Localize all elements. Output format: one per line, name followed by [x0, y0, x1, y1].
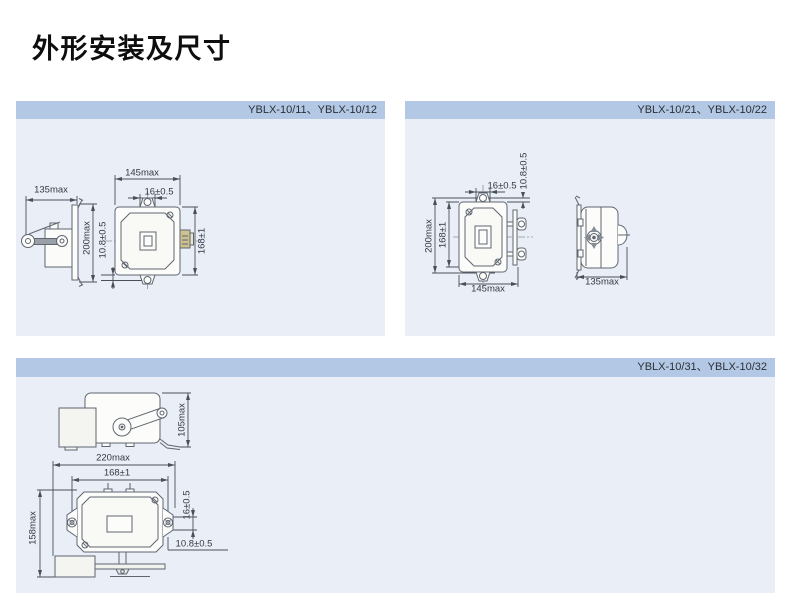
dim-lever-height: 105max [177, 403, 187, 437]
dim-height: 200max [82, 221, 92, 255]
datasheet-page: 外形安装及尺寸 YBLX-10/11、YBLX-10/12 [0, 0, 790, 614]
dim-hole-offset: 10.8±0.5 [519, 153, 529, 190]
dim-side-width: 135max [34, 185, 68, 195]
dim-slot: 16±0.5 [488, 181, 517, 191]
model-label: YBLX-10/31、YBLX-10/32 [637, 361, 767, 373]
dim-hole-spacing: 168±1 [197, 228, 207, 254]
dimension-drawing-front-and-side [405, 101, 775, 336]
panel-header: YBLX-10/21、YBLX-10/22 [405, 101, 775, 119]
panel-yblx-10-11-12: YBLX-10/11、YBLX-10/12 [16, 101, 385, 336]
dim-hole-offset: 10.8±0.5 [176, 539, 213, 549]
dim-front-width: 145max [471, 284, 505, 294]
dim-side-width: 135max [585, 277, 619, 287]
panel-yblx-10-31-32: YBLX-10/31、YBLX-10/32 [16, 358, 775, 593]
model-label: YBLX-10/21、YBLX-10/22 [637, 104, 767, 116]
dimension-drawing-side-and-front [16, 101, 385, 336]
front-view-drawing [55, 489, 173, 577]
dim-total-height: 158max [28, 511, 38, 545]
dim-hole-spacing: 168±1 [104, 468, 130, 478]
dim-slot: 16±0.5 [182, 491, 192, 520]
dim-total-width: 220max [96, 453, 130, 463]
dim-height: 200max [424, 219, 434, 253]
front-view-drawing [115, 198, 194, 284]
side-view-drawing [575, 196, 630, 279]
dim-hole-spacing: 168±1 [438, 222, 448, 248]
model-label: YBLX-10/11、YBLX-10/12 [248, 104, 377, 116]
dim-hole-offset: 10.8±0.5 [98, 222, 108, 259]
dim-front-width: 145max [125, 168, 159, 178]
panel-yblx-10-21-22: YBLX-10/21、YBLX-10/22 [405, 101, 775, 336]
dim-slot: 16±0.5 [145, 187, 174, 197]
side-view-drawing [22, 199, 84, 287]
panel-header: YBLX-10/31、YBLX-10/32 [16, 358, 775, 377]
front-view-drawing [459, 193, 526, 281]
panel-header: YBLX-10/11、YBLX-10/12 [16, 101, 385, 119]
page-title: 外形安装及尺寸 [32, 27, 232, 66]
side-view-lever-drawing [59, 393, 180, 450]
